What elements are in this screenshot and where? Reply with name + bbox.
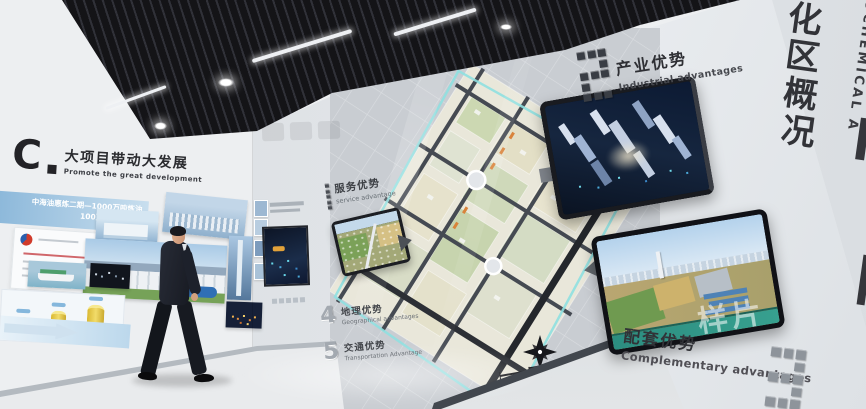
person-leg xyxy=(140,300,173,377)
pixel-cell xyxy=(766,383,777,394)
blurred-heading xyxy=(270,201,305,215)
pixel-cell xyxy=(587,50,596,59)
pixel-cell xyxy=(777,397,788,408)
pixel-cell xyxy=(580,72,589,81)
pixel-cell xyxy=(327,200,332,205)
pixel-cell xyxy=(604,90,613,99)
person-hair xyxy=(170,226,186,236)
pixel-cell xyxy=(771,346,782,357)
walking-visitor xyxy=(138,226,218,388)
photo-night-plant xyxy=(89,263,130,289)
exhibition-hall-render: C 大项目带动大发展 Promote the great development… xyxy=(0,0,866,409)
pixel-cell xyxy=(578,62,587,71)
photo-tower xyxy=(227,236,253,301)
pixel-cell xyxy=(583,93,592,102)
person-leg xyxy=(176,300,207,375)
pixel-cell xyxy=(780,372,791,383)
pixel-number-3 xyxy=(765,346,806,409)
pixel-cell xyxy=(792,374,803,385)
pixel-cell xyxy=(781,360,792,371)
pixel-cell xyxy=(768,371,779,382)
pixel-cell xyxy=(778,385,789,396)
night-city-render-image xyxy=(545,81,710,215)
pixel-cell xyxy=(600,69,609,78)
highlight-tag xyxy=(273,246,285,251)
pixel-cell xyxy=(795,349,806,360)
logo-letter: C xyxy=(11,138,42,172)
item5-number: 5 xyxy=(322,341,340,364)
pixel-cell xyxy=(576,51,585,60)
downlight-icon xyxy=(218,78,234,87)
small-photo xyxy=(254,200,268,217)
pixel-cell xyxy=(597,48,606,57)
pixel-cell xyxy=(783,348,794,359)
pixel-cell xyxy=(326,194,331,199)
pixel-cell xyxy=(325,183,330,188)
downlight-icon xyxy=(154,122,167,130)
pixel-cell xyxy=(791,386,802,397)
pixel-cell xyxy=(599,58,608,67)
person-hand xyxy=(191,293,198,301)
pixel-cell xyxy=(593,91,602,100)
pixel-cell xyxy=(794,362,805,373)
pixel-cell xyxy=(765,396,776,407)
transparent-display-screen xyxy=(262,225,310,287)
pixel-cell xyxy=(789,399,800,409)
right-arrow-icon xyxy=(4,320,79,341)
screen-lights xyxy=(271,262,273,264)
company-logo-icon xyxy=(20,233,33,246)
wall-seam xyxy=(252,131,253,352)
pixel-cell xyxy=(581,82,590,91)
photo-tanker-ship xyxy=(27,261,86,290)
pixel-cell xyxy=(328,205,333,210)
pixel-cell xyxy=(592,81,601,90)
pixel-cell xyxy=(769,359,780,370)
pixel-cell xyxy=(325,189,330,194)
sign-char: 况 xyxy=(779,112,818,154)
person-shoe xyxy=(194,373,214,382)
item4-number: 4 xyxy=(319,305,337,328)
logo-period-square xyxy=(48,165,58,175)
pixel-cell xyxy=(602,79,611,88)
pixel-cell xyxy=(588,60,597,69)
photo-night-city xyxy=(226,301,263,328)
town-aerial-image xyxy=(334,210,408,273)
pixel-cell xyxy=(590,70,599,79)
downlight-icon xyxy=(500,24,512,30)
faint-watermark xyxy=(262,121,341,142)
